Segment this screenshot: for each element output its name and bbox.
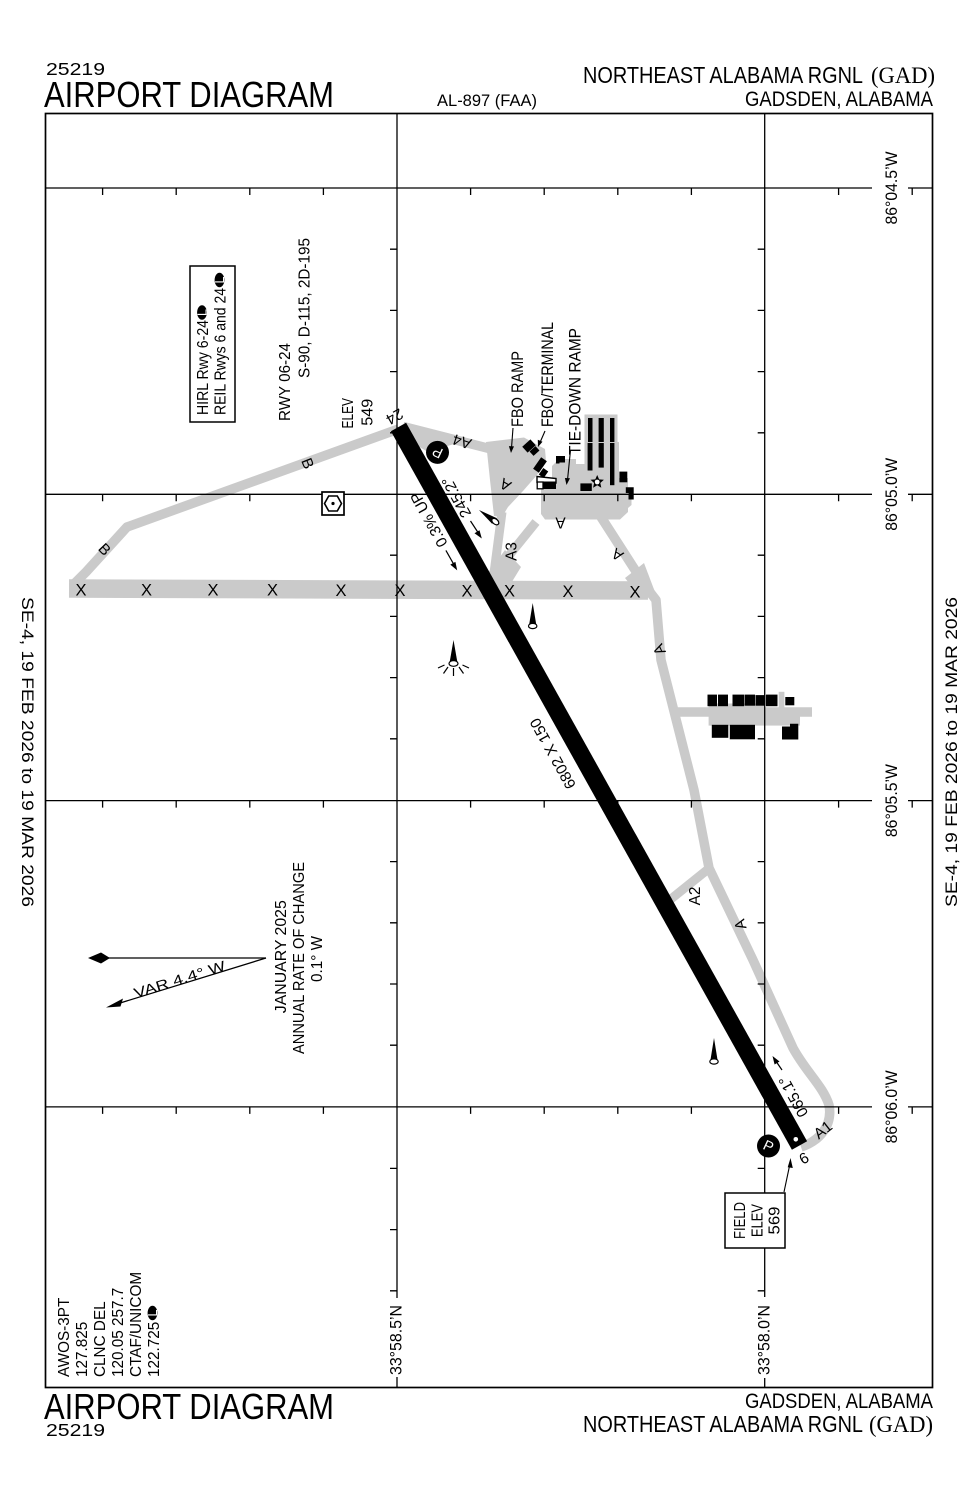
svg-text:FBO/TERMINAL: FBO/TERMINAL xyxy=(538,322,557,427)
svg-text:X: X xyxy=(394,582,405,600)
svg-text:(GAD): (GAD) xyxy=(871,63,935,88)
svg-text:122.725: 122.725 xyxy=(146,1322,163,1377)
svg-text:CTAF/UNICOM: CTAF/UNICOM xyxy=(128,1272,145,1377)
svg-text:AWOS-3PT: AWOS-3PT xyxy=(56,1298,73,1377)
svg-text:AL-897 (FAA): AL-897 (FAA) xyxy=(437,91,537,110)
svg-text:127.825: 127.825 xyxy=(74,1322,91,1377)
svg-text:ELEV: ELEV xyxy=(340,397,357,428)
svg-text:S-90, D-115, 2D-195: S-90, D-115, 2D-195 xyxy=(297,238,314,378)
svg-text:X: X xyxy=(141,582,152,600)
svg-text:X: X xyxy=(504,583,515,601)
svg-text:A3: A3 xyxy=(504,542,521,561)
svg-text:ELEV: ELEV xyxy=(750,1203,767,1237)
svg-text:A: A xyxy=(555,514,566,531)
svg-text:GADSDEN, ALABAMA: GADSDEN, ALABAMA xyxy=(745,88,933,111)
svg-text:TIE-DOWN RAMP: TIE-DOWN RAMP xyxy=(566,328,585,455)
svg-text:HIRL Rwy 6-24: HIRL Rwy 6-24 xyxy=(195,320,212,415)
svg-text:86°06.0’W: 86°06.0’W xyxy=(882,1070,901,1143)
svg-text:ANNUAL RATE OF CHANGE: ANNUAL RATE OF CHANGE xyxy=(291,862,308,1054)
svg-text:X: X xyxy=(75,582,86,600)
svg-text:GADSDEN, ALABAMA: GADSDEN, ALABAMA xyxy=(745,1390,933,1413)
svg-text:NORTHEAST ALABAMA RGNL: NORTHEAST ALABAMA RGNL xyxy=(583,62,863,88)
svg-text:120.05 257.7: 120.05 257.7 xyxy=(110,1288,127,1377)
svg-text:NORTHEAST ALABAMA RGNL: NORTHEAST ALABAMA RGNL xyxy=(583,1411,863,1437)
svg-text:REIL Rwys 6 and 24: REIL Rwys 6 and 24 xyxy=(213,288,230,415)
svg-text:X: X xyxy=(207,582,218,600)
svg-text:L: L xyxy=(195,309,209,316)
svg-text:X: X xyxy=(267,582,278,600)
svg-text:86°04.5’W: 86°04.5’W xyxy=(882,152,901,225)
svg-text:X: X xyxy=(461,583,472,601)
svg-text:(GAD): (GAD) xyxy=(869,1412,933,1437)
svg-text:86°05.0’W: 86°05.0’W xyxy=(882,458,901,531)
svg-text:X: X xyxy=(629,584,640,602)
svg-text:CLNC DEL: CLNC DEL xyxy=(92,1301,109,1377)
svg-text:549: 549 xyxy=(360,399,377,426)
svg-text:0.1° W: 0.1° W xyxy=(309,936,326,982)
svg-text:33°58.0’N: 33°58.0’N xyxy=(755,1305,774,1375)
svg-text:33°58.5’N: 33°58.5’N xyxy=(387,1305,406,1375)
svg-text:FIELD: FIELD xyxy=(732,1202,749,1239)
svg-text:SE-4, 19 FEB 2026 to 19 MAR: SE-4, 19 FEB 2026 to 19 MAR 2026 xyxy=(18,597,37,907)
svg-text:JANUARY 2025: JANUARY 2025 xyxy=(273,900,290,1013)
svg-text:X: X xyxy=(562,583,573,601)
svg-text:SE-4, 19 FEB 2026 to 19 MAR: SE-4, 19 FEB 2026 to 19 MAR 2026 xyxy=(942,597,961,907)
svg-text:A2: A2 xyxy=(687,887,704,906)
svg-text:L: L xyxy=(146,1309,160,1316)
svg-text:RWY 06-24: RWY 06-24 xyxy=(277,343,294,421)
svg-text:86°05.5’W: 86°05.5’W xyxy=(882,764,901,837)
svg-text:L: L xyxy=(213,276,227,283)
svg-text:FBO RAMP: FBO RAMP xyxy=(508,351,527,427)
svg-text:AIRPORT DIAGRAM: AIRPORT DIAGRAM xyxy=(44,74,334,115)
svg-text:569: 569 xyxy=(767,1207,784,1235)
svg-text:25219: 25219 xyxy=(46,1420,105,1440)
svg-text:X: X xyxy=(335,582,346,600)
